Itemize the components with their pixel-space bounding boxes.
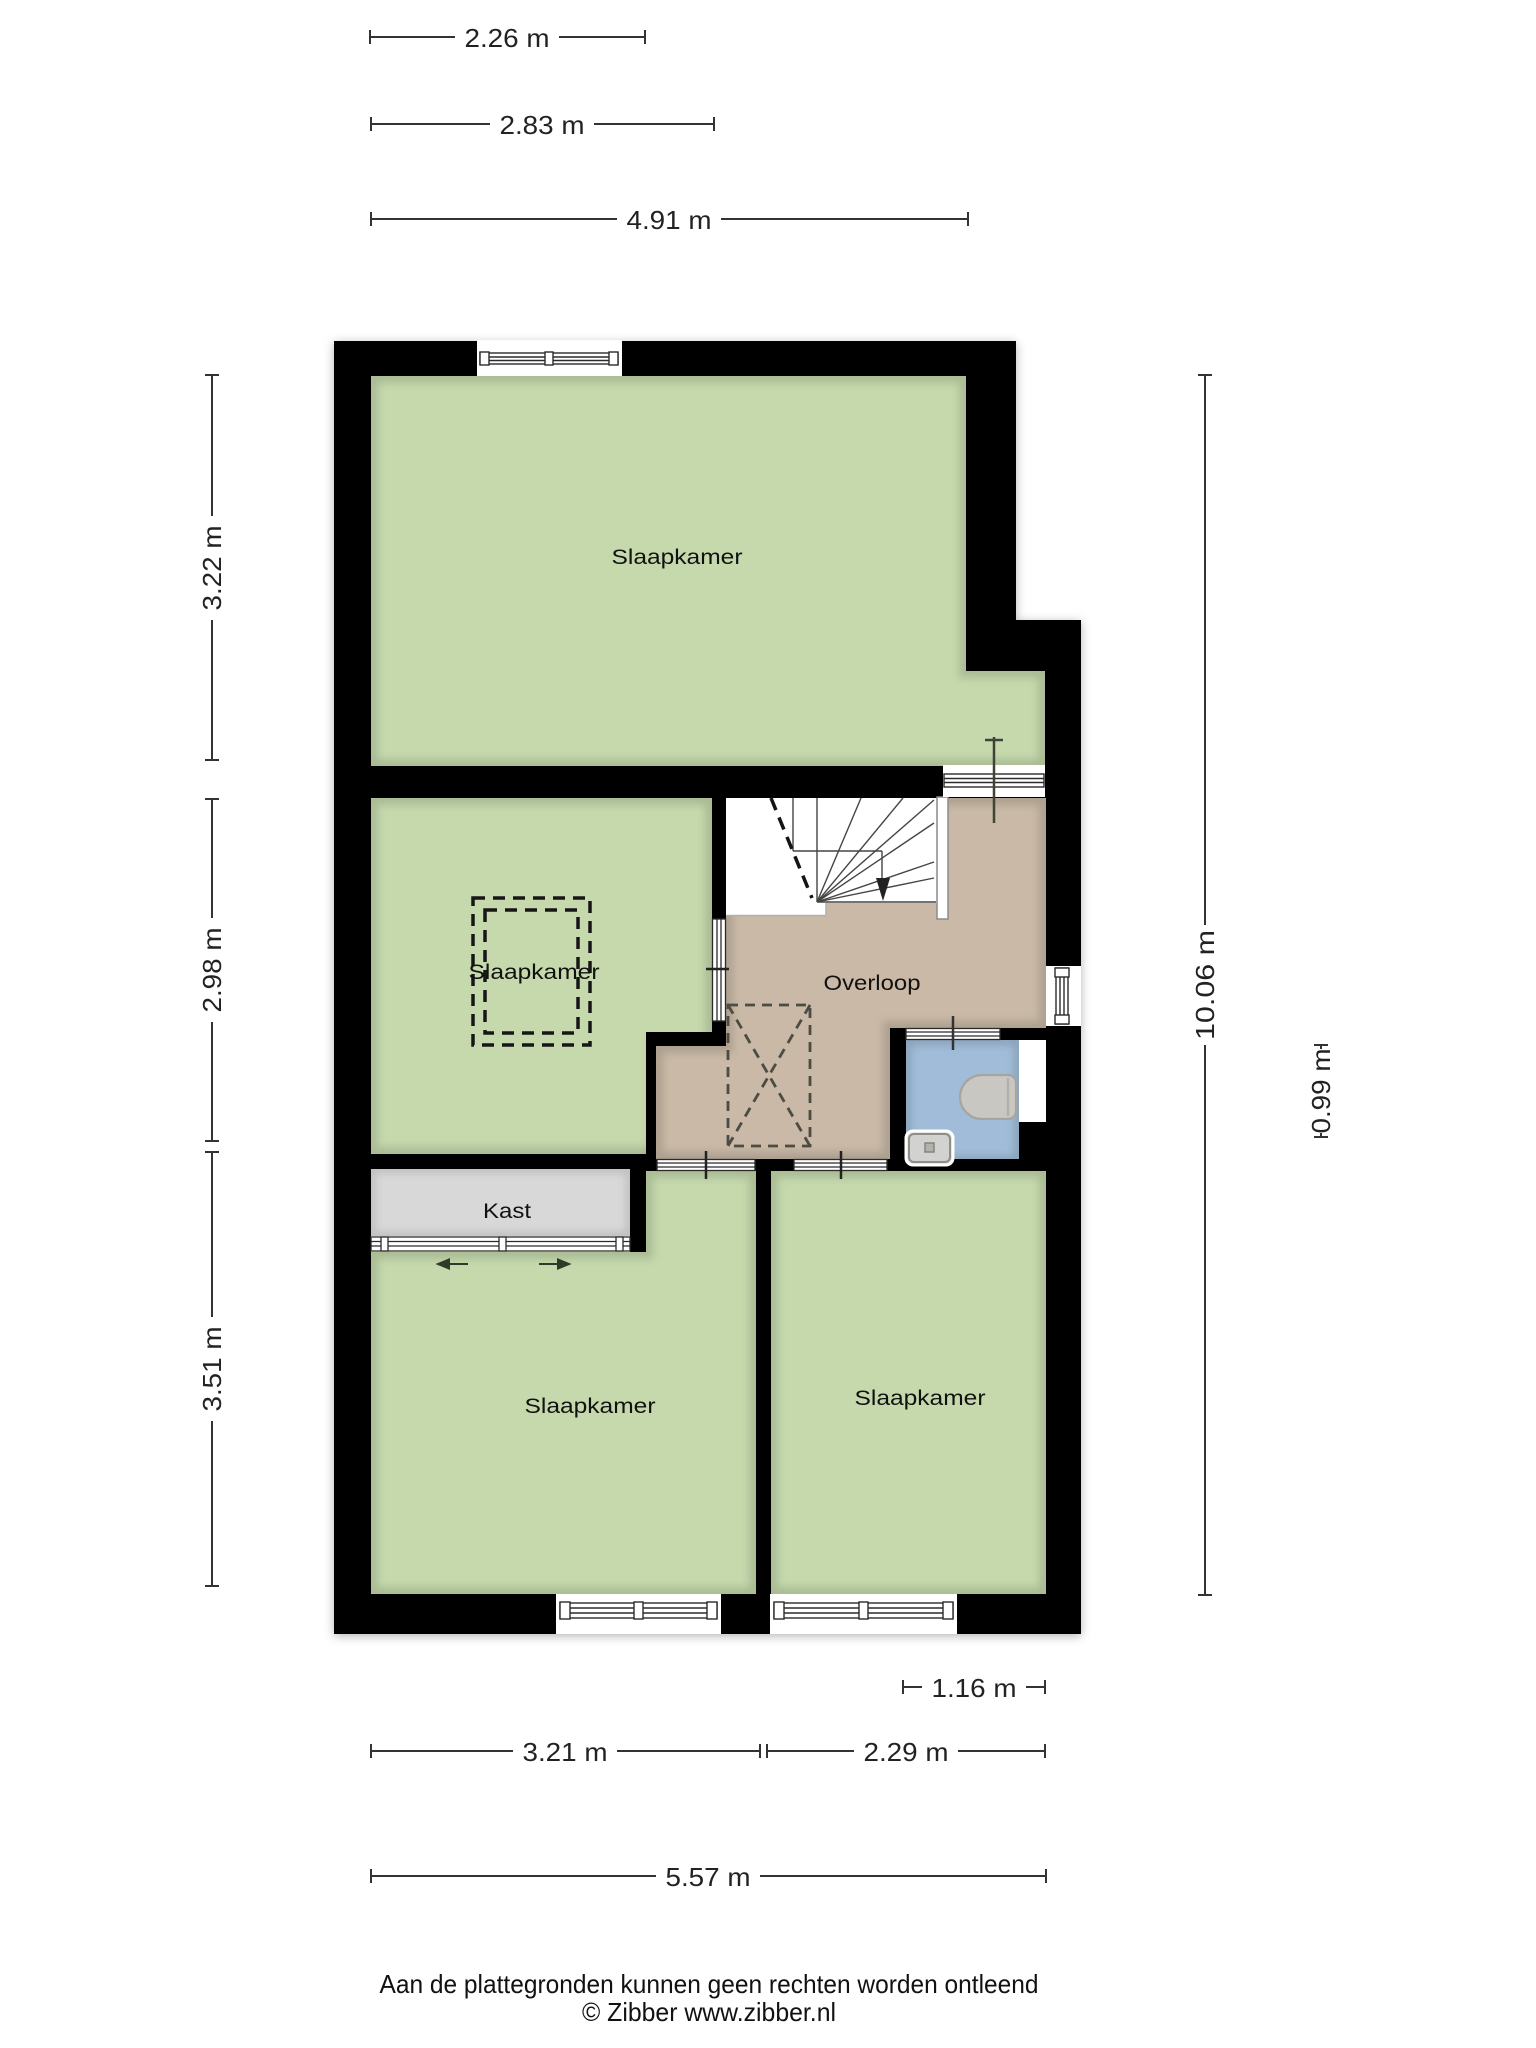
svg-text:2.83 m: 2.83 m bbox=[500, 110, 585, 140]
svg-text:1.16 m: 1.16 m bbox=[932, 1673, 1017, 1703]
svg-text:2.29 m: 2.29 m bbox=[864, 1737, 949, 1767]
svg-text:3.22 m: 3.22 m bbox=[197, 526, 227, 611]
svg-text:© Zibber www.zibber.nl: © Zibber www.zibber.nl bbox=[582, 1997, 836, 2027]
svg-text:10.06 m: 10.06 m bbox=[1190, 930, 1220, 1040]
svg-text:Kast: Kast bbox=[483, 1200, 531, 1223]
svg-text:3.21 m: 3.21 m bbox=[523, 1737, 608, 1767]
svg-text:Slaapkamer: Slaapkamer bbox=[612, 546, 743, 569]
svg-text:Slaapkamer: Slaapkamer bbox=[855, 1387, 986, 1410]
svg-text:Aan de plattegronden kunnen ge: Aan de plattegronden kunnen geen rechten… bbox=[380, 1969, 1039, 1999]
svg-text:3.51 m: 3.51 m bbox=[197, 1327, 227, 1412]
svg-text:0.99 m: 0.99 m bbox=[1306, 1049, 1336, 1134]
svg-text:4.91 m: 4.91 m bbox=[627, 205, 712, 235]
svg-text:Overloop: Overloop bbox=[824, 972, 921, 995]
svg-text:5.57 m: 5.57 m bbox=[666, 1862, 751, 1892]
svg-text:2.26 m: 2.26 m bbox=[465, 23, 550, 53]
svg-text:Slaapkamer: Slaapkamer bbox=[469, 961, 600, 984]
svg-text:2.98 m: 2.98 m bbox=[197, 928, 227, 1013]
svg-text:Slaapkamer: Slaapkamer bbox=[525, 1395, 656, 1418]
